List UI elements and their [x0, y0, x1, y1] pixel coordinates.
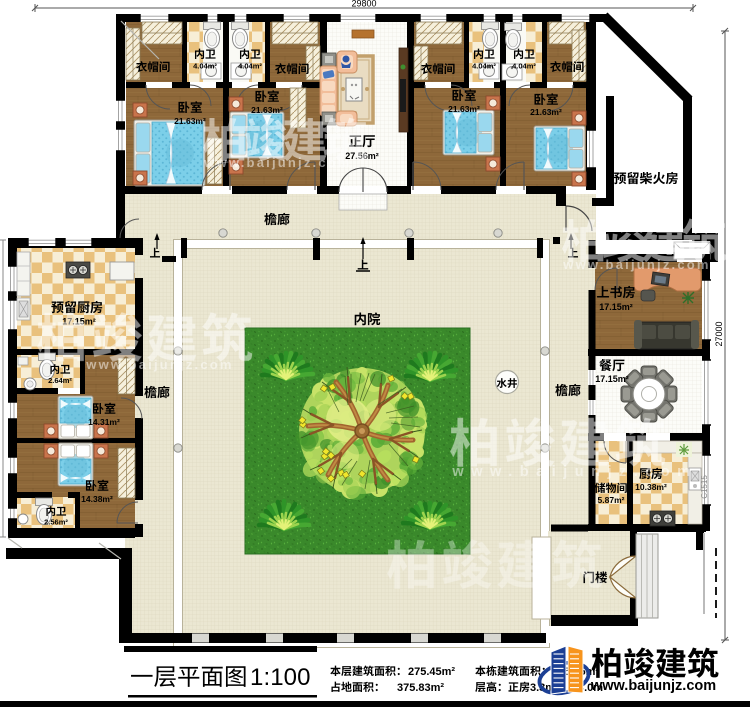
- svg-text:21.63m²: 21.63m²: [251, 105, 283, 115]
- svg-text:27000: 27000: [714, 321, 724, 346]
- svg-text:www.baijunjz.com: www.baijunjz.com: [562, 257, 710, 272]
- svg-text:17.15m²: 17.15m²: [599, 302, 633, 312]
- svg-text:www.baijunjz.com: www.baijunjz.com: [451, 464, 697, 480]
- svg-text:5.87m²: 5.87m²: [598, 495, 625, 505]
- svg-text:www.baijunjz.com: www.baijunjz.com: [590, 678, 716, 694]
- svg-text:21.63m²: 21.63m²: [530, 107, 562, 117]
- svg-text:14.31m²: 14.31m²: [88, 417, 120, 427]
- svg-text:2.56m²: 2.56m²: [44, 518, 68, 527]
- svg-text:17.15m²: 17.15m²: [595, 374, 629, 384]
- svg-text:4.04m²: 4.04m²: [472, 62, 496, 71]
- svg-text:www.baijunjz.com: www.baijunjz.com: [85, 357, 233, 372]
- svg-text:10.38m²: 10.38m²: [635, 482, 667, 492]
- svg-text:4.04m²: 4.04m²: [238, 62, 262, 71]
- svg-text:C1515: C1515: [700, 475, 709, 499]
- svg-text:275.45m²: 275.45m²: [408, 666, 455, 678]
- svg-text:21.63m²: 21.63m²: [174, 116, 206, 126]
- svg-text:4.04m²: 4.04m²: [512, 62, 536, 71]
- svg-text:1:100: 1:100: [250, 664, 312, 691]
- svg-text:2.64m²: 2.64m²: [48, 376, 72, 385]
- svg-text:www.baijunjz.com: www.baijunjz.com: [203, 155, 351, 170]
- svg-text:29800: 29800: [351, 0, 376, 9]
- svg-text:4.04m²: 4.04m²: [193, 62, 217, 71]
- svg-text:21.63m²: 21.63m²: [448, 104, 480, 114]
- svg-text:14.38m²: 14.38m²: [81, 494, 113, 504]
- svg-text:375.83m²: 375.83m²: [397, 682, 444, 694]
